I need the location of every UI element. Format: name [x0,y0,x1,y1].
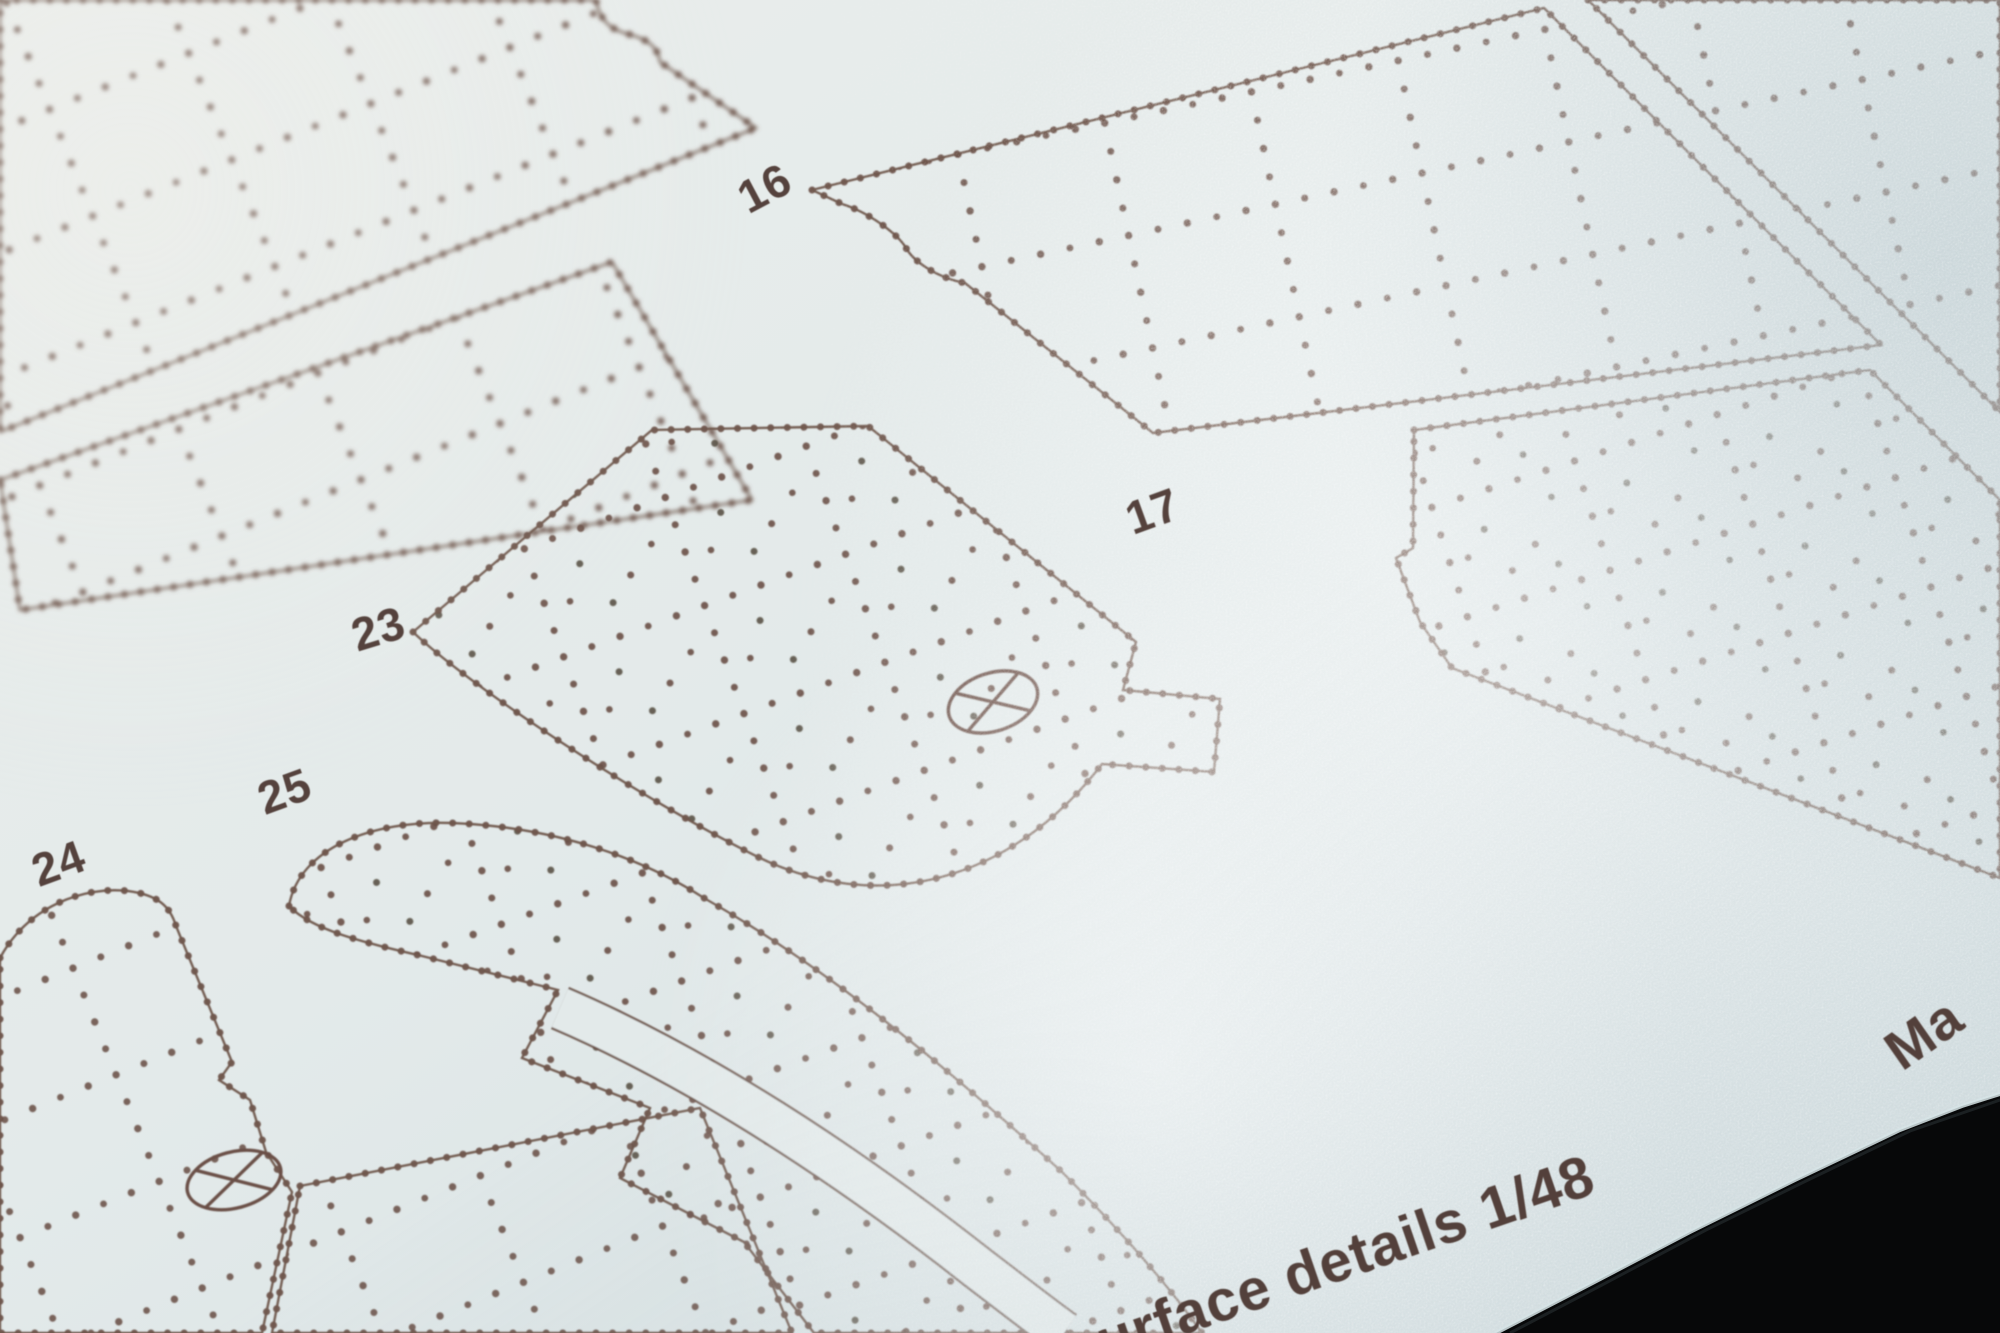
template-sheet-photo: 16 17 23 24 25 urface details 1/48 Ma [0,0,2000,1333]
photo-canvas: 16 17 23 24 25 urface details 1/48 Ma [0,0,2000,1333]
surface-grain [0,0,2000,1333]
glossy-sheen [0,0,2000,1333]
